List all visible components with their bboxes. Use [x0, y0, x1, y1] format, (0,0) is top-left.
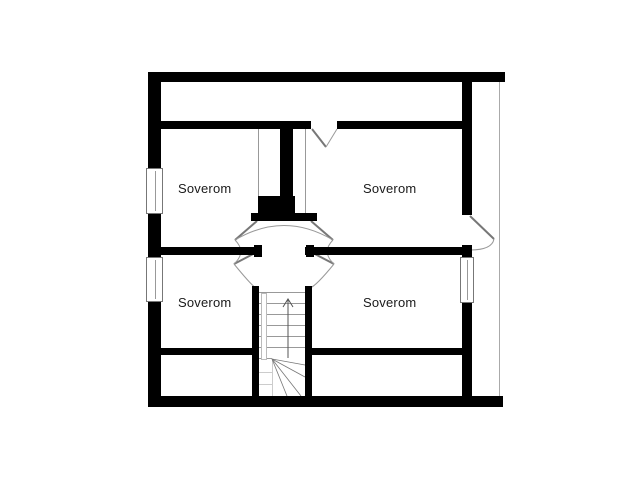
- window-right: [460, 257, 474, 303]
- wall-top-interior-right: [337, 121, 462, 129]
- room-label-top-right: Soverom: [363, 181, 416, 196]
- wall-mid-right: [305, 247, 462, 255]
- staircase-icon: [259, 293, 305, 397]
- door-right-icon: [470, 216, 494, 250]
- wall-hall-bar: [251, 213, 317, 221]
- jamb-mid-right: [306, 245, 314, 257]
- wall-low-right: [312, 348, 462, 355]
- room-label-bottom-right: Soverom: [363, 295, 416, 310]
- window-mullion: [155, 260, 156, 299]
- stair-up-arrow: [283, 299, 293, 358]
- wall-mid-left: [161, 247, 262, 255]
- wall-right-lower: [462, 300, 472, 396]
- room-label-top-left: Soverom: [178, 181, 231, 196]
- floor-plan: Soverom Soverom Soverom Soverom: [0, 0, 625, 481]
- window-left-upper: [146, 168, 163, 214]
- wall-top-interior-left: [161, 121, 311, 129]
- stair-winders: [272, 359, 305, 396]
- door-top-icon: [312, 129, 337, 147]
- window-mullion: [155, 171, 156, 211]
- wall-outer-bottom: [148, 396, 503, 407]
- wall-stair-right: [305, 286, 312, 396]
- wall-outer-top: [148, 72, 505, 82]
- wall-outer-left: [148, 72, 161, 407]
- window-mullion: [467, 260, 468, 300]
- wall-low-left: [161, 348, 252, 355]
- room-label-bottom-left: Soverom: [178, 295, 231, 310]
- window-left-lower: [146, 257, 163, 302]
- wall-stair-left: [252, 286, 259, 396]
- stair-handrail: [262, 294, 267, 360]
- jamb-mid-left: [254, 245, 262, 257]
- wall-right-upper: [462, 82, 472, 215]
